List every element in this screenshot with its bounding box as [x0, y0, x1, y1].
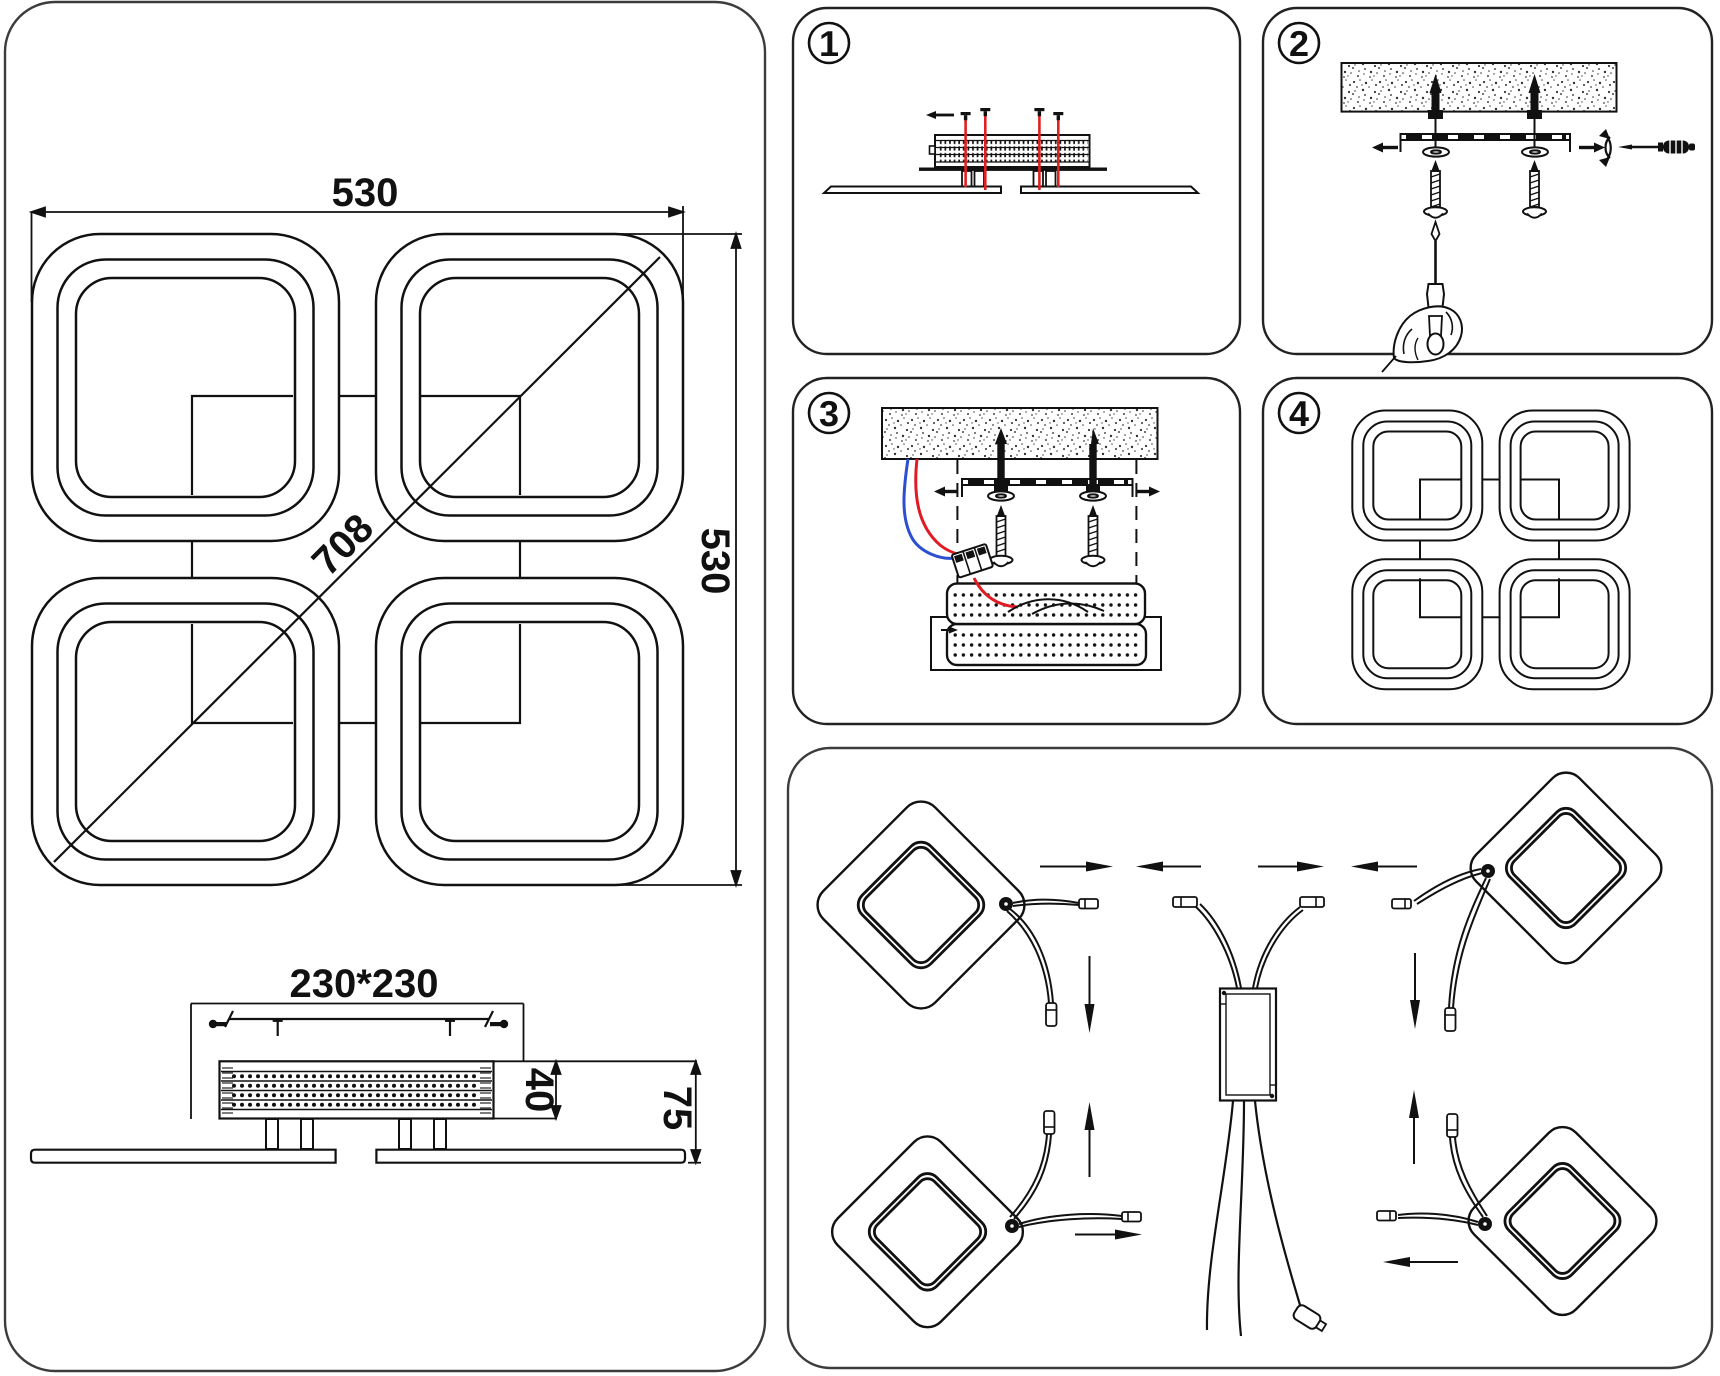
svg-text:40: 40	[517, 1068, 561, 1113]
svg-text:4: 4	[1289, 393, 1309, 434]
svg-text:75: 75	[655, 1086, 699, 1131]
svg-text:3: 3	[819, 393, 839, 434]
svg-text:2: 2	[1289, 23, 1309, 64]
svg-text:1: 1	[819, 23, 839, 64]
svg-text:530: 530	[693, 528, 737, 595]
svg-text:230*230: 230*230	[289, 962, 438, 1006]
svg-text:530: 530	[332, 171, 399, 215]
